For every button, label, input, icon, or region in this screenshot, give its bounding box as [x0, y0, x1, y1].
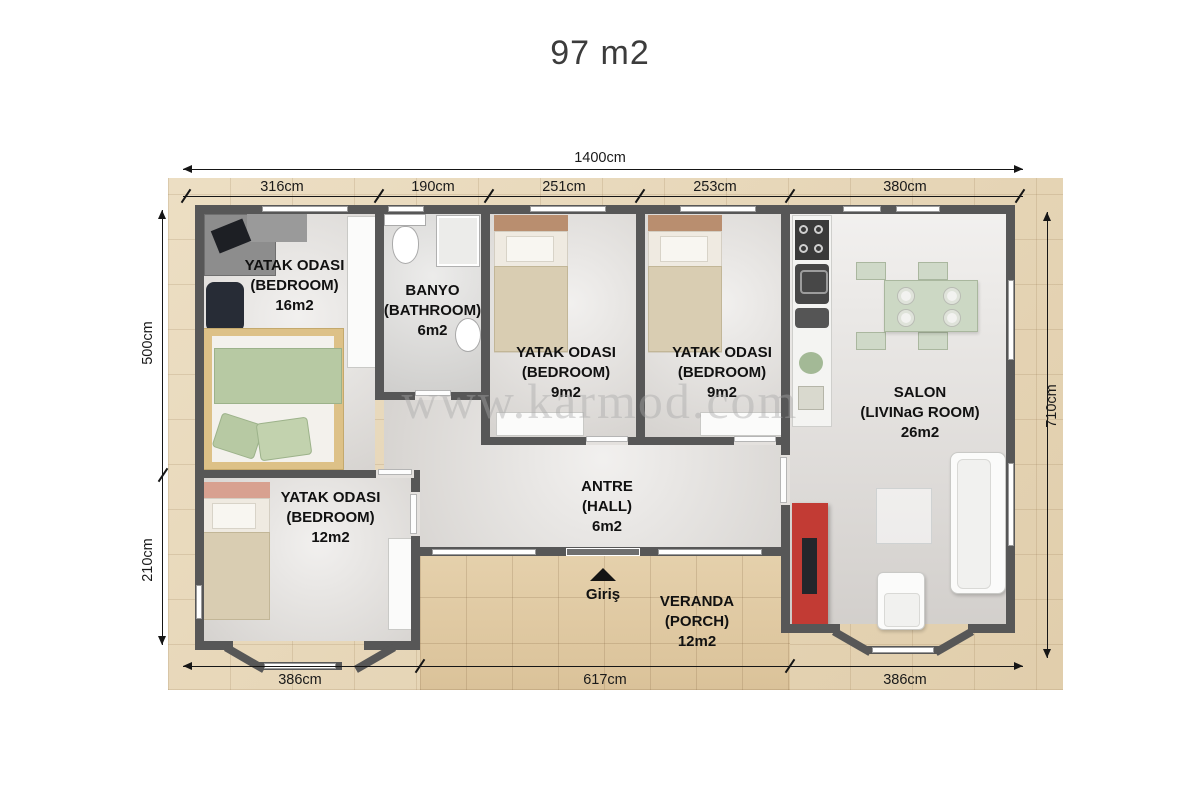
- room-name: YATAK ODASI: [248, 488, 413, 508]
- window: [1008, 463, 1014, 546]
- dim-arrow: [1043, 649, 1051, 658]
- dining-table: [884, 280, 978, 332]
- room-area: 26m2: [845, 423, 995, 443]
- room-label-bedroom-16: YATAK ODASI (BEDROOM) 16m2: [212, 256, 377, 316]
- room-subname: (BATHROOM): [370, 301, 495, 321]
- kitchen-drawer: [795, 308, 829, 328]
- window: [388, 206, 424, 212]
- door: [734, 436, 776, 442]
- entrance-door: [566, 548, 640, 556]
- dim-bottom: 617cm: [565, 672, 645, 688]
- window: [680, 206, 756, 212]
- dresser: [700, 412, 782, 436]
- oven: [795, 264, 829, 304]
- room-label-bathroom: BANYO (BATHROOM) 6m2: [370, 281, 495, 341]
- dining-chair: [918, 332, 948, 350]
- room-area: 6m2: [370, 321, 495, 341]
- dresser: [496, 412, 584, 436]
- dim-tick: [158, 468, 169, 482]
- wall: [968, 624, 1015, 633]
- window: [432, 549, 536, 555]
- wall: [1006, 205, 1015, 633]
- room-name: YATAK ODASI: [500, 343, 632, 363]
- dim-arrow: [158, 210, 166, 219]
- wall: [195, 205, 204, 650]
- room-name: YATAK ODASI: [212, 256, 377, 276]
- dim-line: [183, 169, 1023, 170]
- room-subname: (LIVINaG ROOM): [845, 403, 995, 423]
- dining-chair: [856, 332, 886, 350]
- floor-plan-canvas: 97 m2: [0, 0, 1200, 800]
- door: [415, 390, 451, 396]
- dim-right: 710cm: [1044, 366, 1060, 446]
- room-name: SALON: [845, 383, 995, 403]
- dim-arrow: [1014, 165, 1023, 173]
- dining-chair: [918, 262, 948, 280]
- room-label-bedroom-9-right: YATAK ODASI (BEDROOM) 9m2: [656, 343, 788, 403]
- bay-window: [872, 647, 934, 653]
- coffee-table: [876, 488, 932, 544]
- entrance-label: Giriş: [562, 585, 644, 605]
- cooktop: [795, 220, 829, 260]
- room-subname: (BEDROOM): [656, 363, 788, 383]
- dining-chair: [856, 262, 886, 280]
- wardrobe: [388, 538, 413, 630]
- sofa: [950, 452, 1006, 594]
- room-label-bedroom-12: YATAK ODASI (BEDROOM) 12m2: [248, 488, 413, 548]
- door: [780, 457, 787, 503]
- plan-title: 97 m2: [0, 34, 1200, 73]
- window: [658, 549, 762, 555]
- room-area: 9m2: [500, 383, 632, 403]
- desk-return: [247, 214, 307, 242]
- window: [530, 206, 606, 212]
- room-subname: (BEDROOM): [500, 363, 632, 383]
- room-subname: (BEDROOM): [212, 276, 377, 296]
- window: [262, 206, 348, 212]
- room-area: 12m2: [248, 528, 413, 548]
- wall: [636, 205, 645, 445]
- dim-arrow: [158, 636, 166, 645]
- room-name: VERANDA: [622, 592, 772, 612]
- room-name: ANTRE: [538, 477, 676, 497]
- room-area: 6m2: [538, 517, 676, 537]
- shower-tray: [437, 216, 479, 266]
- single-bed-duvet: [494, 266, 568, 352]
- room-subname: (HALL): [538, 497, 676, 517]
- dim-line: [183, 196, 1023, 197]
- dim-seg: 253cm: [675, 179, 755, 195]
- pillow: [506, 236, 554, 262]
- dim-top-total: 1400cm: [560, 150, 640, 166]
- room-area: 16m2: [212, 296, 377, 316]
- dim-left-bottom: 210cm: [140, 520, 156, 600]
- window: [896, 206, 940, 212]
- pillow: [256, 417, 313, 462]
- room-label-hall: ANTRE (HALL) 6m2: [538, 477, 676, 537]
- toilet-tank: [384, 214, 426, 226]
- room-label-veranda: VERANDA (PORCH) 12m2: [622, 592, 772, 652]
- pillow: [660, 236, 708, 262]
- entrance-arrow-icon: [590, 568, 616, 581]
- dim-seg: 316cm: [242, 179, 322, 195]
- dim-arrow: [183, 165, 192, 173]
- dim-line: [162, 210, 163, 645]
- kitchen-sink: [798, 386, 824, 410]
- tv: [802, 538, 817, 594]
- dim-arrow: [1014, 662, 1023, 670]
- dim-seg: 190cm: [393, 179, 473, 195]
- room-label-bedroom-9-left: YATAK ODASI (BEDROOM) 9m2: [500, 343, 632, 403]
- door: [586, 436, 628, 442]
- single-bed-headboard: [648, 215, 722, 231]
- dim-arrow: [1043, 212, 1051, 221]
- dim-seg: 380cm: [865, 179, 945, 195]
- dim-arrow: [183, 662, 192, 670]
- double-bed-duvet: [214, 348, 342, 404]
- room-name: YATAK ODASI: [656, 343, 788, 363]
- room-name: BANYO: [370, 281, 495, 301]
- room-subname: (PORCH): [622, 612, 772, 632]
- window: [196, 585, 202, 619]
- dim-seg: 251cm: [524, 179, 604, 195]
- wall: [781, 205, 790, 633]
- single-bed-headboard: [494, 215, 568, 231]
- room-label-salon: SALON (LIVINaG ROOM) 26m2: [845, 383, 995, 443]
- dim-line: [183, 666, 1023, 667]
- room-subname: (BEDROOM): [248, 508, 413, 528]
- door: [378, 469, 412, 475]
- toilet-bowl: [392, 226, 419, 264]
- window: [843, 206, 881, 212]
- room-area: 12m2: [622, 632, 772, 652]
- dim-bottom: 386cm: [260, 672, 340, 688]
- dim-left-top: 500cm: [140, 303, 156, 383]
- dim-bottom: 386cm: [865, 672, 945, 688]
- single-bed-duvet: [648, 266, 722, 352]
- window: [1008, 280, 1014, 360]
- plant: [799, 352, 823, 374]
- room-area: 9m2: [656, 383, 788, 403]
- armchair: [877, 572, 925, 630]
